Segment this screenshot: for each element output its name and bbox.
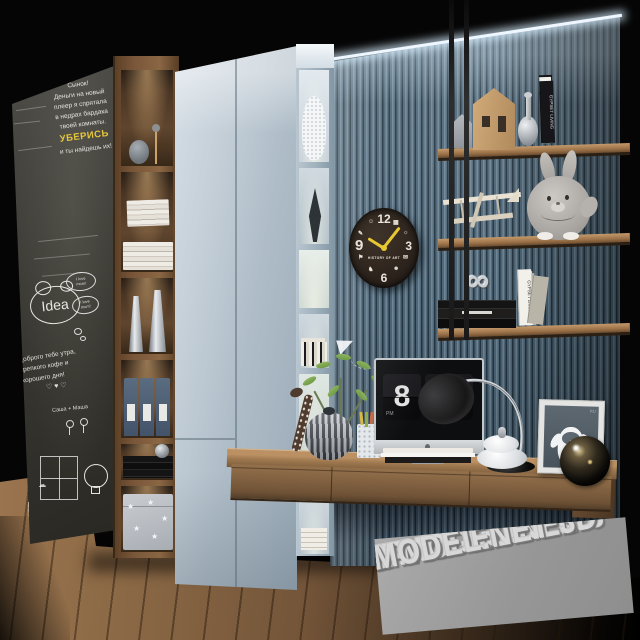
wardrobe-door-seam bbox=[235, 46, 237, 588]
chrome-bottle-neck bbox=[526, 96, 531, 120]
mini-book-flat bbox=[301, 338, 325, 342]
binder bbox=[156, 378, 170, 436]
shelf-cell-star-box: ★ ★ ★ ★ ★ bbox=[121, 486, 173, 552]
stick-figure-body bbox=[83, 425, 84, 433]
lit-shelf-top bbox=[296, 44, 334, 68]
stone-knob bbox=[498, 427, 506, 438]
chrome-bottle-vase bbox=[518, 116, 538, 146]
bubble-text: mom! bbox=[76, 281, 86, 287]
striped-gourd-vase bbox=[305, 412, 353, 460]
wall-clock: 12 3 6 9 ▦ ☼ ✉ ☻ ♞ ⚑ ✎ ☺ HISTORY OF ART bbox=[349, 208, 419, 288]
clock-number-12: 12 bbox=[349, 212, 419, 226]
white-book-stack bbox=[127, 199, 170, 226]
shelf-cell-black-books bbox=[121, 444, 173, 480]
rabbit-smile bbox=[541, 208, 575, 221]
binder bbox=[124, 378, 138, 436]
stone-stack-decor bbox=[477, 427, 527, 469]
clock-number-3: 3 bbox=[405, 239, 412, 253]
plant-leaf bbox=[316, 361, 332, 370]
gray-vase bbox=[129, 140, 149, 164]
clock-center-cap bbox=[381, 245, 387, 251]
clock-doodle-icon: ☻ bbox=[393, 266, 399, 272]
plant-leaf bbox=[302, 375, 318, 388]
chalk-note: Сынок! Деньги на новый плеер я спрятала … bbox=[46, 76, 119, 158]
shelf-cell-silver-vases bbox=[121, 278, 173, 354]
yeti-arm bbox=[548, 432, 563, 450]
flip-clock-hour-digit: 8 bbox=[394, 380, 411, 413]
chalk-scribble bbox=[14, 121, 40, 125]
star-icon: ★ bbox=[151, 532, 158, 541]
shelf-cell-binders bbox=[121, 360, 173, 438]
chalkboard-wall: Сынок! Деньги на новый плеер я спрятала … bbox=[8, 60, 116, 546]
dark-vase bbox=[307, 188, 323, 242]
chalk-wish-text: Доброго тебе утра, крепкого кофе и хорош… bbox=[18, 344, 98, 387]
rabbit-eye bbox=[547, 196, 551, 201]
rabbit-nose bbox=[556, 202, 560, 205]
silver-vase bbox=[129, 296, 143, 352]
clock-doodle-icon: ♞ bbox=[368, 266, 373, 273]
star-icon: ★ bbox=[147, 498, 154, 507]
chalk-scribble bbox=[34, 254, 90, 260]
stick-vase bbox=[155, 130, 157, 164]
clock-number-9: 9 bbox=[355, 237, 363, 254]
star-icon: ★ bbox=[161, 514, 168, 523]
lightbulb-drawing bbox=[84, 464, 108, 488]
airplane-model bbox=[441, 184, 529, 238]
stick-figure-body bbox=[69, 427, 70, 435]
clock-doodle-icon: ▦ bbox=[393, 219, 399, 226]
wardrobe-door-seam bbox=[175, 438, 235, 440]
shelf-cell-vases bbox=[121, 70, 173, 166]
binder bbox=[140, 378, 154, 436]
chrome-bottle-cap bbox=[524, 92, 532, 98]
chalk-scribble bbox=[18, 146, 52, 151]
bottom-shelf-book-row: GYPSET LIVING BALLET GYPSET LIVING bbox=[517, 266, 623, 325]
hanging-rod bbox=[449, 0, 454, 340]
plant-leaf bbox=[336, 353, 352, 361]
silver-ball-decor bbox=[155, 444, 169, 458]
plush-rabbit-toy bbox=[525, 150, 597, 242]
airplane-wing bbox=[449, 213, 513, 225]
room-render: 12 3 6 9 ▦ ☼ ✉ ☻ ♞ ⚑ ✎ ☺ HISTORY OF ART … bbox=[0, 0, 640, 640]
knot-sculpture: ∞ bbox=[455, 260, 501, 302]
shelf-cell-empty bbox=[299, 250, 329, 308]
cloud-tail-dot bbox=[80, 336, 86, 341]
rabbit-foot bbox=[563, 232, 579, 240]
top-shelf-book-row: THE VALENTINO Beach Chic VOGUE AMERICAN … bbox=[539, 73, 619, 143]
chalk-scribble bbox=[38, 235, 98, 242]
star-icon: ★ bbox=[127, 502, 134, 511]
clock-brand-label: HISTORY OF ART bbox=[349, 256, 419, 260]
perforated-vase bbox=[302, 96, 326, 160]
rabbit-foot bbox=[537, 232, 553, 240]
stick-figure-head bbox=[80, 418, 88, 426]
black-book-stack bbox=[123, 456, 173, 478]
clock-number-6: 6 bbox=[349, 271, 419, 285]
silver-vase bbox=[149, 290, 166, 352]
flip-clock-meridiem: PM bbox=[386, 412, 394, 417]
stick-figure-head bbox=[66, 420, 74, 428]
clock-doodle-icon: ✎ bbox=[358, 230, 363, 237]
plant-leaf bbox=[326, 384, 341, 399]
white-book-stack bbox=[123, 242, 173, 270]
rabbit-eye bbox=[565, 195, 569, 200]
chalk-names: Саша + Маша bbox=[52, 404, 88, 414]
bubble-text: mum! bbox=[81, 304, 92, 310]
shelf-cell-perforated-vase bbox=[299, 70, 329, 162]
plant-leaf bbox=[355, 359, 371, 371]
clock-doodle-icon: ☼ bbox=[403, 230, 409, 236]
chalk-hearts: ♡ ♥ ♡ bbox=[46, 381, 67, 391]
mirror-sphere-decor bbox=[560, 436, 610, 486]
clock-doodle-icon: ☺ bbox=[368, 219, 374, 225]
book-spine: GYPSET LIVING bbox=[539, 81, 555, 143]
hanging-rod bbox=[464, 0, 469, 340]
idea-text: Idea bbox=[41, 296, 70, 315]
white-book-stack bbox=[301, 528, 327, 550]
wardrobe-blue bbox=[175, 46, 297, 592]
star-icon: ★ bbox=[133, 524, 140, 533]
drawer-seam bbox=[330, 467, 332, 501]
star-storage-box: ★ ★ ★ ★ ★ bbox=[123, 494, 173, 550]
shelf-cell-dark-vase bbox=[299, 168, 329, 244]
cloud-tail-dot bbox=[74, 328, 82, 335]
frame-label: RU bbox=[590, 408, 596, 413]
wooden-shelf-column: ★ ★ ★ ★ ★ bbox=[113, 56, 179, 558]
pencil bbox=[365, 412, 368, 427]
chalk-scribble bbox=[16, 106, 46, 111]
shelf-cell-books bbox=[121, 172, 173, 272]
